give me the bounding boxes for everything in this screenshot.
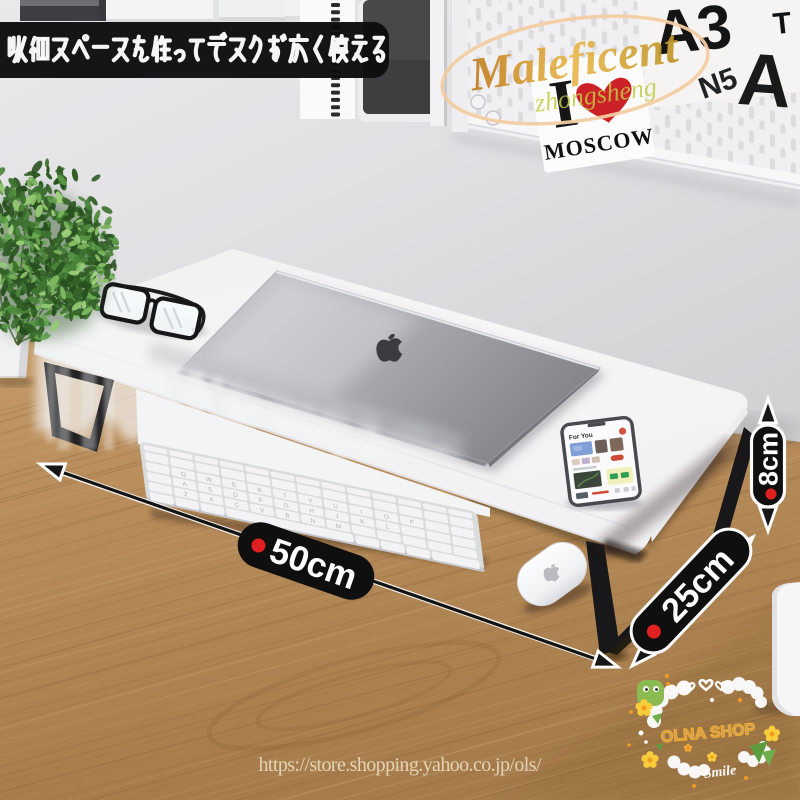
svg-text:T: T	[771, 7, 793, 42]
svg-text:https://store.shopping.yahoo.c: https://store.shopping.yahoo.co.jp/ols/	[259, 754, 542, 776]
svg-text:8cm: 8cm	[754, 432, 784, 486]
svg-text:M: M	[335, 523, 341, 531]
svg-text:A: A	[735, 37, 794, 124]
